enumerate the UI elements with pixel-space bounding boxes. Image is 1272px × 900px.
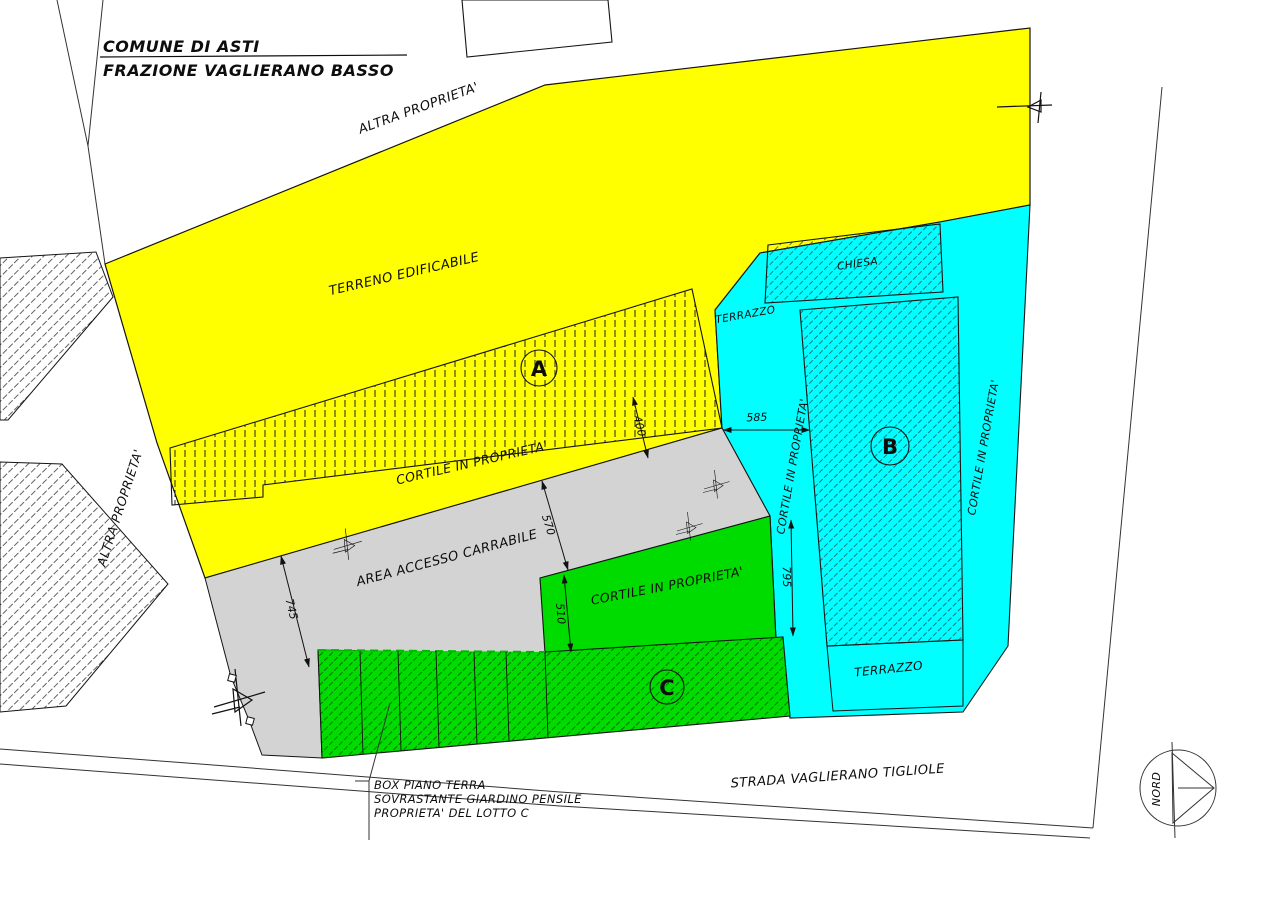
lot-b-letter: B — [882, 435, 898, 459]
hatched-area-w — [0, 462, 168, 712]
north-compass-icon: NORD — [1140, 742, 1216, 838]
building-b — [800, 297, 963, 646]
dimension-510: 510 — [553, 603, 568, 625]
site-plan-page: A B C 400 585 570 510 745 795 BOX PIANO … — [0, 0, 1272, 900]
boundary-point-square — [246, 717, 255, 726]
boundary-point-square — [228, 674, 237, 683]
hatched-area-nw — [0, 252, 113, 420]
dimension-585: 585 — [746, 411, 767, 425]
lot-c-letter: C — [659, 676, 674, 700]
road-edge-line-upper — [0, 749, 1093, 828]
drawing-title-line1: COMUNE DI ASTI — [103, 37, 260, 56]
neighbor-parcel-top — [462, 0, 612, 57]
neighbor-boundary-nw — [57, 0, 105, 264]
building-c-hatch — [318, 637, 790, 758]
legend-note-line2: SOVRASTANTE GIARDINO PENSILE — [374, 792, 582, 806]
lot-a-letter: A — [531, 357, 548, 381]
label-strada: STRADA VAGLIERANO TIGLIOLE — [730, 762, 945, 792]
site-plan-canvas: A B C 400 585 570 510 745 795 BOX PIANO … — [0, 0, 1272, 900]
legend-note-line1: BOX PIANO TERRA — [374, 778, 486, 792]
east-boundary-line — [1093, 87, 1162, 828]
legend-note-line3: PROPRIETA' DEL LOTTO C — [374, 806, 529, 820]
dimension-795: 795 — [780, 566, 794, 587]
drawing-title-line2: FRAZIONE VAGLIERANO BASSO — [103, 61, 394, 80]
label-nord: NORD — [1150, 772, 1163, 807]
